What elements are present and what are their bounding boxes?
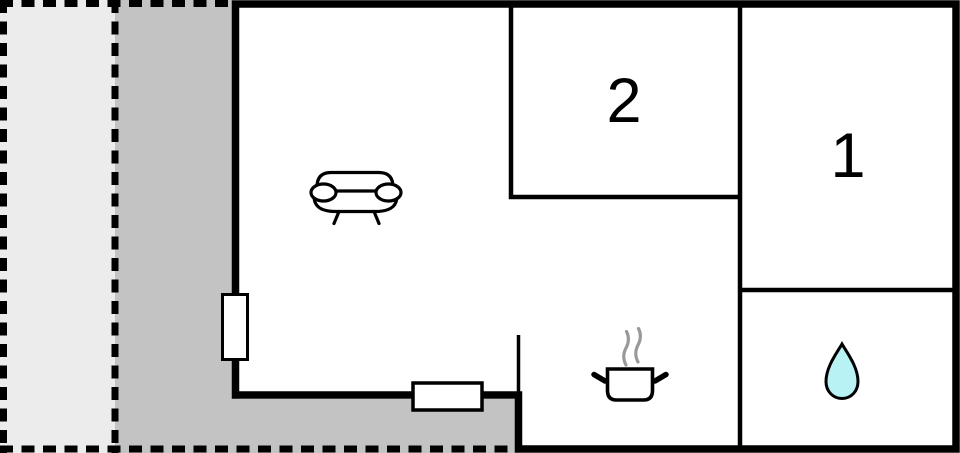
terrace-light-area [0, 0, 115, 453]
bedroom-2-label: 2 [606, 66, 641, 136]
sofa-armrest-right [376, 184, 401, 201]
bedroom-1-label: 1 [830, 121, 865, 191]
sofa-armrest-left [311, 184, 336, 201]
pot-body [608, 369, 653, 400]
window-bottom-wall [413, 383, 482, 410]
floor-plan: 2 1 [0, 0, 960, 453]
window-left-wall [223, 295, 248, 360]
